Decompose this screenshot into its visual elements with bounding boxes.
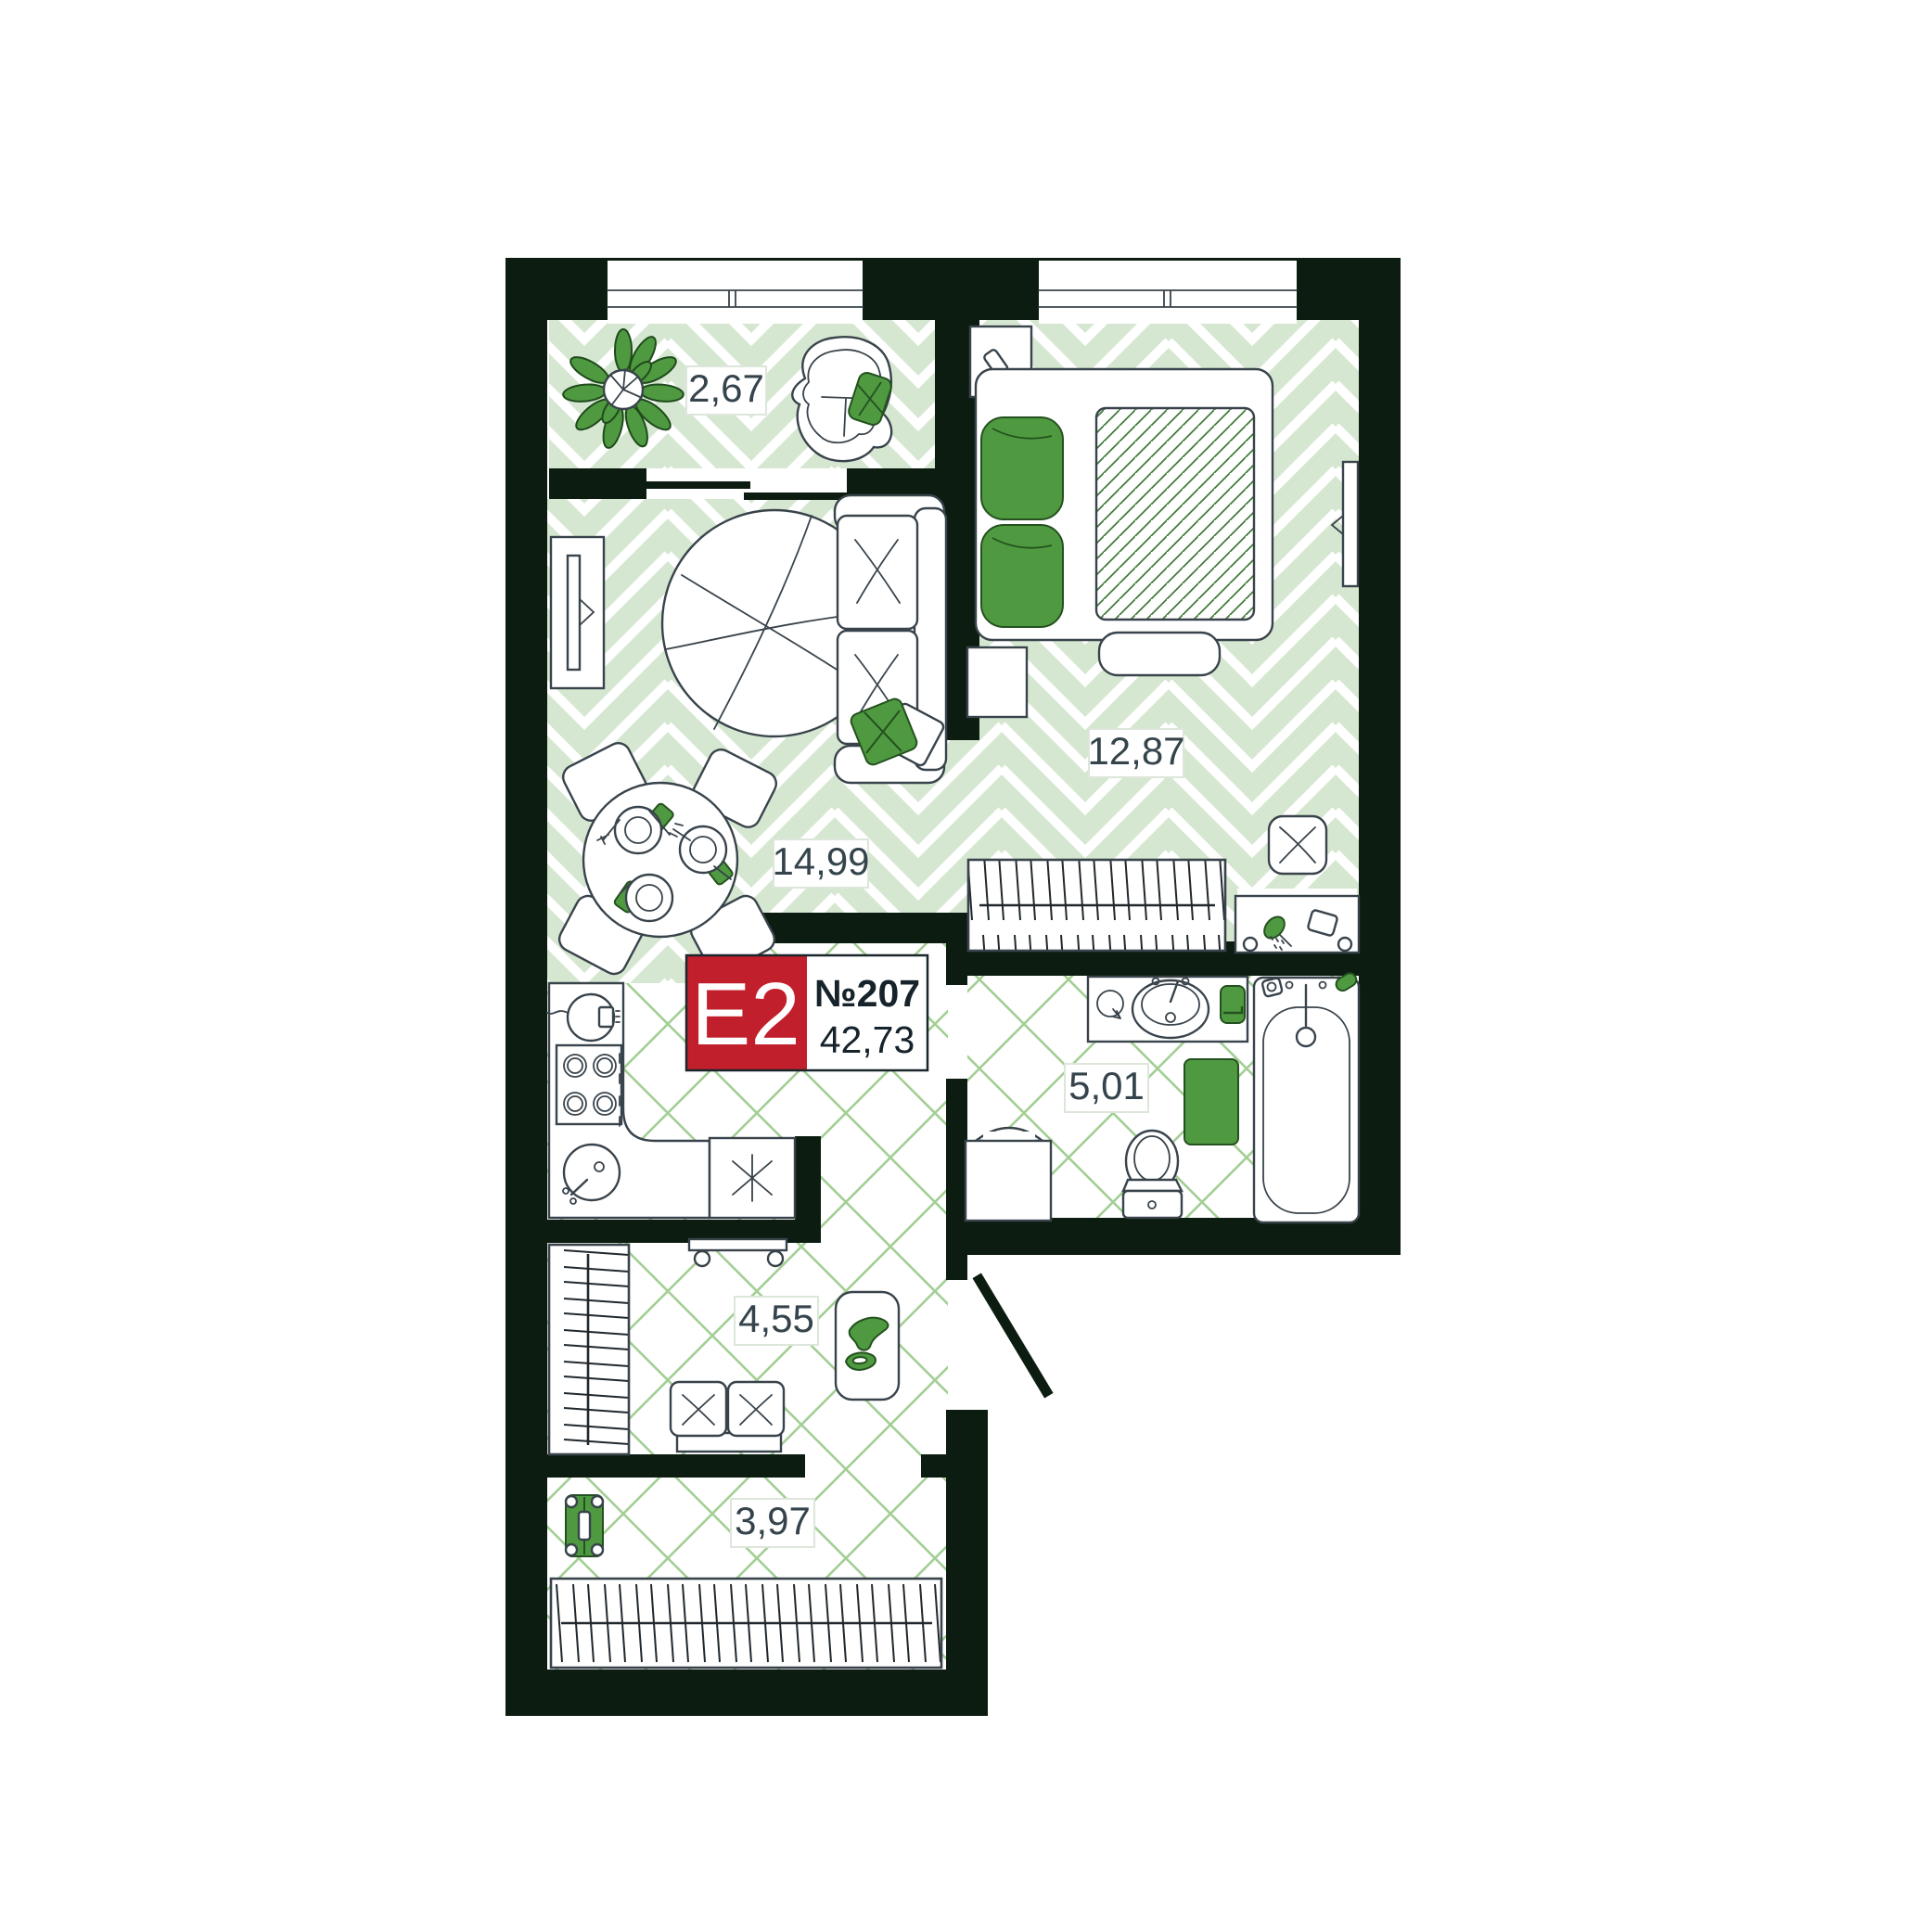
balcony-armchair-icon: [792, 337, 893, 461]
area-label-entry: 3,97: [735, 1499, 811, 1542]
bed-icon: [976, 369, 1273, 675]
hall-wardrobe-icon: [549, 1245, 629, 1454]
bath-mat-icon: [1184, 1059, 1238, 1145]
sink-counter-icon: [1088, 977, 1247, 1042]
shoe-mat-icon: [836, 1292, 899, 1400]
sofa-icon: [835, 495, 946, 783]
bathtub-icon: [1254, 971, 1359, 1222]
stove-icon: [557, 1045, 621, 1126]
area-label-living: 14,99: [772, 839, 869, 883]
worktop-light-icon: [710, 1138, 795, 1218]
dresser-icon: [1235, 889, 1359, 953]
entry-wardrobe-icon: [551, 1579, 941, 1668]
unit-number: №207: [814, 972, 920, 1015]
area-label-bathroom: 5,01: [1068, 1064, 1145, 1107]
unit-badge: E2 №207 42,73: [686, 955, 928, 1070]
unit-type-code: E2: [691, 965, 800, 1064]
area-label-bedroom: 12,87: [1087, 729, 1184, 773]
area-label-hallway: 4,55: [738, 1297, 814, 1340]
nightstand-icon: [967, 647, 1027, 717]
balcony-window: [608, 261, 863, 324]
tv-unit-icon: [551, 537, 604, 688]
bedroom-wardrobe-icon: [968, 860, 1225, 951]
area-label-balcony: 2,67: [688, 366, 764, 410]
pouf-icon: [1269, 816, 1326, 874]
entry-door-leaf: [979, 1280, 1046, 1391]
toilet-icon: [1123, 1131, 1182, 1218]
hall-bench-icon: [671, 1382, 784, 1452]
floor-plan-page: 2,67 14,99 12,87 5,01 4,55 3,97 E2 №207 …: [0, 0, 1932, 1932]
bedroom-window: [1039, 261, 1297, 324]
unit-total-area: 42,73: [820, 1018, 915, 1061]
floor-plan: 2,67 14,99 12,87 5,01 4,55 3,97 E2 №207 …: [0, 0, 1932, 1932]
washing-machine-icon: [966, 1128, 1051, 1221]
suitcase-icon: [566, 1495, 603, 1556]
balcony-sliding-door: [646, 481, 750, 489]
